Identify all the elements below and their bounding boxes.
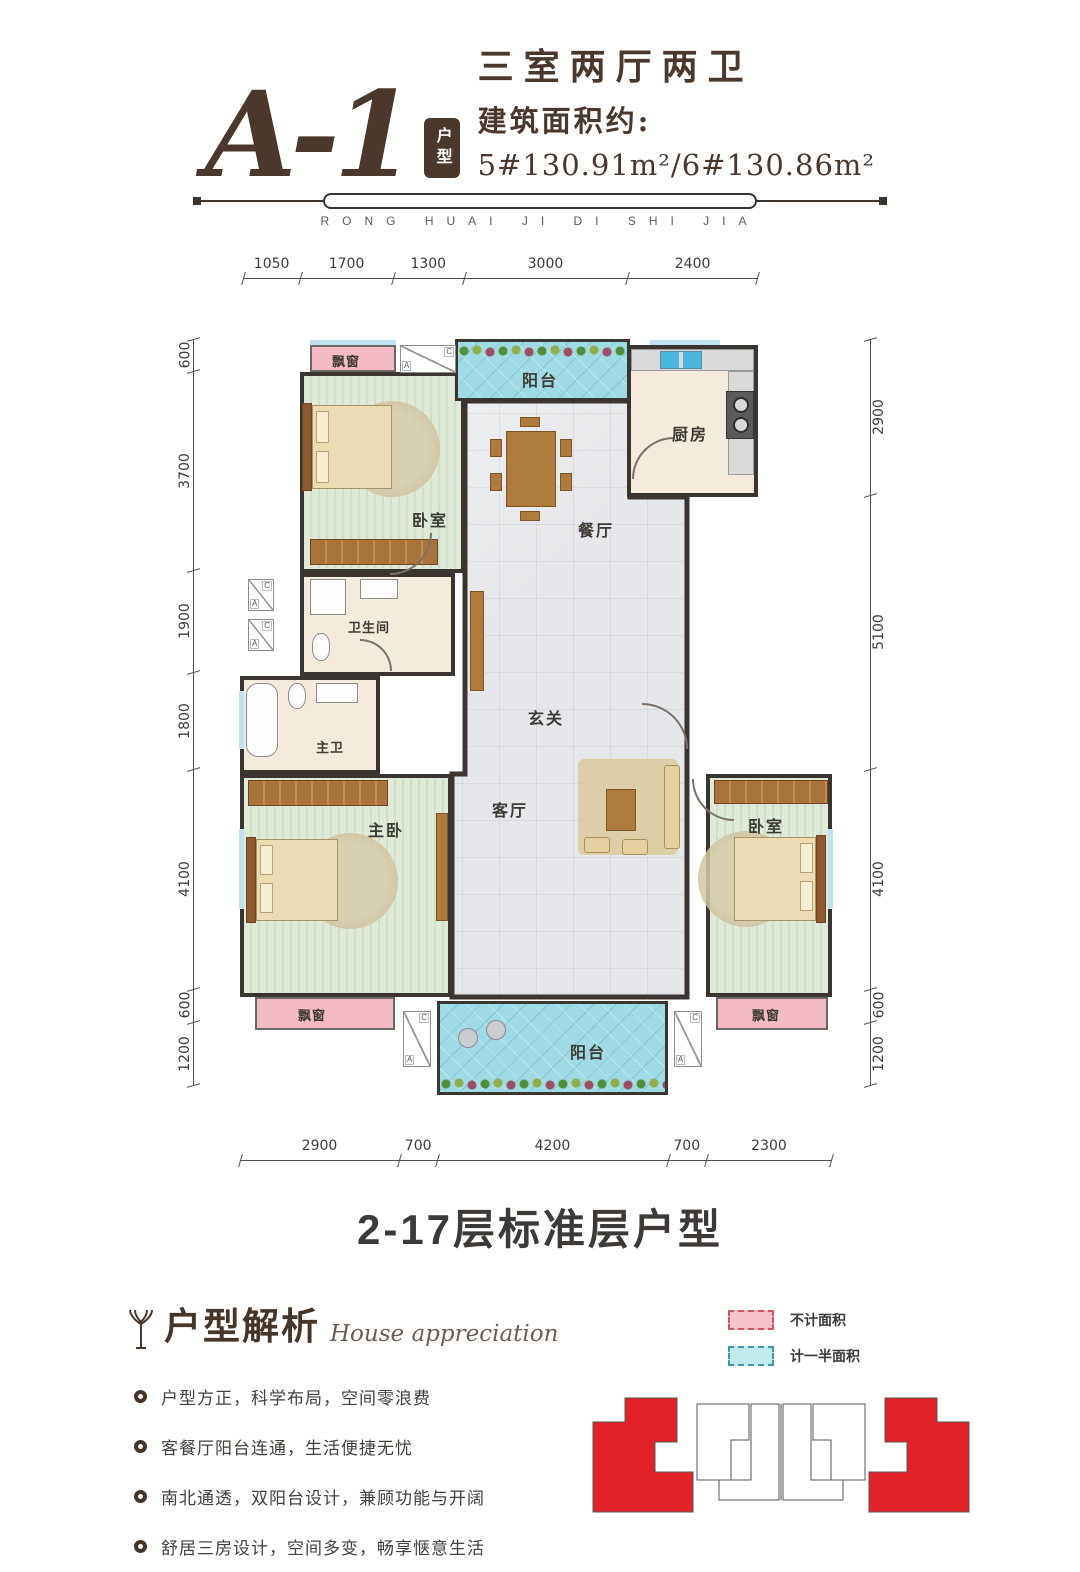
bed-headboard [246,837,256,923]
armchair [584,837,610,853]
plan-caption: 2-17层标准层户型 [0,1196,1080,1257]
balcony-bottom [437,1001,668,1095]
dining-chair [520,417,540,427]
dim-seg: 1200 [170,1022,200,1086]
floorplan-poster: A-1 户型 三室两厅两卫 建筑面积约: 5#130.91m²/6#130.86… [0,0,1080,1572]
bathroom-sink [316,683,358,703]
analysis-subtitle: House appreciation [330,1321,558,1347]
dim-seg: 2900 [864,339,894,495]
dimension-row-top: 1050 1700 1300 3000 2400 [243,256,758,286]
dim-seg: 600 [170,339,200,371]
label-dining: 餐厅 [578,517,614,541]
dim-seg: 3000 [464,256,627,286]
bathroom-sink [360,579,398,599]
label-master-bath: 主卫 [316,737,344,756]
dim-seg: 700 [399,1138,437,1168]
legend-swatch-pink [728,1310,774,1330]
divider-pill [323,193,757,209]
balcony-chair [458,1028,478,1048]
pillow [800,843,813,873]
dim-seg: 4100 [170,769,200,989]
analysis-title: 户型解析 [164,1296,320,1350]
armchair [622,839,648,855]
window-strip [650,340,720,345]
kitchen-sink [660,351,702,369]
pillow [316,451,329,483]
window-strip [828,829,833,909]
dim-seg: 1800 [170,672,200,769]
bed-headboard [816,835,826,923]
dim-seg: 4100 [864,769,894,989]
unit-code: A-1 [205,82,410,188]
analysis-bullets: 户型方正，科学布局，空间零浪费 客餐厅阳台连通，生活便捷无忧 南北通透，双阳台设… [134,1384,485,1572]
analysis-header: 户型解析 House appreciation [126,1296,558,1350]
highlighted-unit-left [593,1398,693,1512]
dining-chair [490,439,502,457]
legend-row: 计一半面积 [728,1346,860,1366]
label-bath: 卫生间 [348,617,390,636]
stove [726,391,754,439]
window-strip [239,829,244,909]
label-master-bedroom: 主卧 [368,817,404,841]
dim-seg: 600 [864,989,894,1021]
dimension-col-right: 2900 5100 4100 600 1200 [864,339,894,1086]
bathtub [246,683,278,757]
bed-headboard [302,403,312,491]
coffee-table [606,789,636,831]
bullet-icon [134,1540,147,1553]
pillow [316,411,329,443]
dim-seg: 1900 [170,570,200,672]
tv-cabinet [436,813,448,921]
pillow [260,883,273,913]
dim-seg: 1700 [300,256,393,286]
dim-seg: 3700 [170,371,200,570]
label-foyer: 玄关 [528,705,564,729]
ac-unit-box: AC [674,1011,702,1067]
bullet-icon [134,1390,147,1403]
label-bay-bottom-left: 飘窗 [298,1005,326,1024]
area-label: 建筑面积约: [478,98,875,140]
dining-chair [560,473,572,491]
dimension-col-left: 600 3700 1900 1800 4100 600 1200 [170,339,200,1086]
ornament-icon [126,1308,156,1350]
dining-table [506,431,556,507]
dim-seg: 700 [668,1138,706,1168]
ac-unit-box: AC [403,1011,431,1067]
planter-strip [458,344,627,357]
legend-label: 计一半面积 [790,1346,860,1366]
dim-seg: 1300 [393,256,464,286]
planter-strip [440,1077,665,1090]
wardrobe [248,780,388,806]
dining-chair [520,511,540,521]
label-bay-top: 飘窗 [332,351,360,370]
highlighted-unit-right [869,1398,969,1512]
window-strip [239,691,244,749]
header: A-1 户型 三室两厅两卫 建筑面积约: 5#130.91m²/6#130.86… [0,38,1080,188]
bullet-icon [134,1490,147,1503]
ac-unit-box: AC [400,345,456,373]
sofa [664,765,680,849]
ac-unit-box: AC [248,579,274,611]
dim-seg: 600 [170,989,200,1021]
toilet [288,683,306,709]
dim-seg: 4200 [437,1138,667,1168]
bullet-item: 客餐厅阳台连通，生活便捷无忧 [134,1434,485,1459]
building-key-plan [585,1392,977,1517]
label-bay-bottom-right: 飘窗 [752,1005,780,1024]
dining-chair [560,439,572,457]
dimension-row-bottom: 2900 700 4200 700 2300 [240,1138,832,1168]
foyer-cabinet [470,591,484,691]
label-kitchen: 厨房 [672,421,708,445]
dim-seg: 5100 [864,495,894,769]
area-value: 5#130.91m²/6#130.86m² [478,148,875,182]
door-arc [692,779,734,821]
area-legend: 不计面积 计一半面积 [728,1310,860,1382]
divider-rule [195,200,885,202]
ac-unit-box: AC [248,619,274,651]
pillow [800,881,813,911]
label-bedroom-right: 卧室 [748,813,784,837]
dim-seg: 2900 [240,1138,399,1168]
bullet-item: 南北通透，双阳台设计，兼顾功能与开阔 [134,1484,485,1509]
dim-seg: 1050 [243,256,300,286]
window-strip [310,340,396,345]
unit-type-badge: 户型 [424,118,460,178]
dim-seg: 1200 [864,1022,894,1086]
label-balcony-top: 阳台 [522,367,558,391]
balcony-chair [486,1020,506,1040]
shower [310,579,346,615]
label-balcony-bottom: 阳台 [570,1039,606,1063]
legend-row: 不计面积 [728,1310,860,1330]
label-bedroom-top: 卧室 [412,507,448,531]
dim-seg: 2400 [627,256,758,286]
pillow [260,845,273,875]
dim-seg: 2300 [706,1138,832,1168]
bullet-item: 舒居三房设计，空间多变，畅享惬意生活 [134,1534,485,1559]
header-info: 三室两厅两卫 建筑面积约: 5#130.91m²/6#130.86m² [478,38,875,188]
layout-type: 三室两厅两卫 [478,38,875,90]
toilet [312,633,330,661]
legend-label: 不计面积 [790,1310,846,1330]
label-living: 客厅 [492,797,528,821]
bullet-item: 户型方正，科学布局，空间零浪费 [134,1384,485,1409]
bullet-icon [134,1440,147,1453]
floor-plan: AC AC AC AC AC [240,339,834,1095]
dining-chair [490,473,502,491]
legend-swatch-cyan [728,1346,774,1366]
brand-letters: RONG HUAI JI DI SHI JIA [0,214,1080,228]
